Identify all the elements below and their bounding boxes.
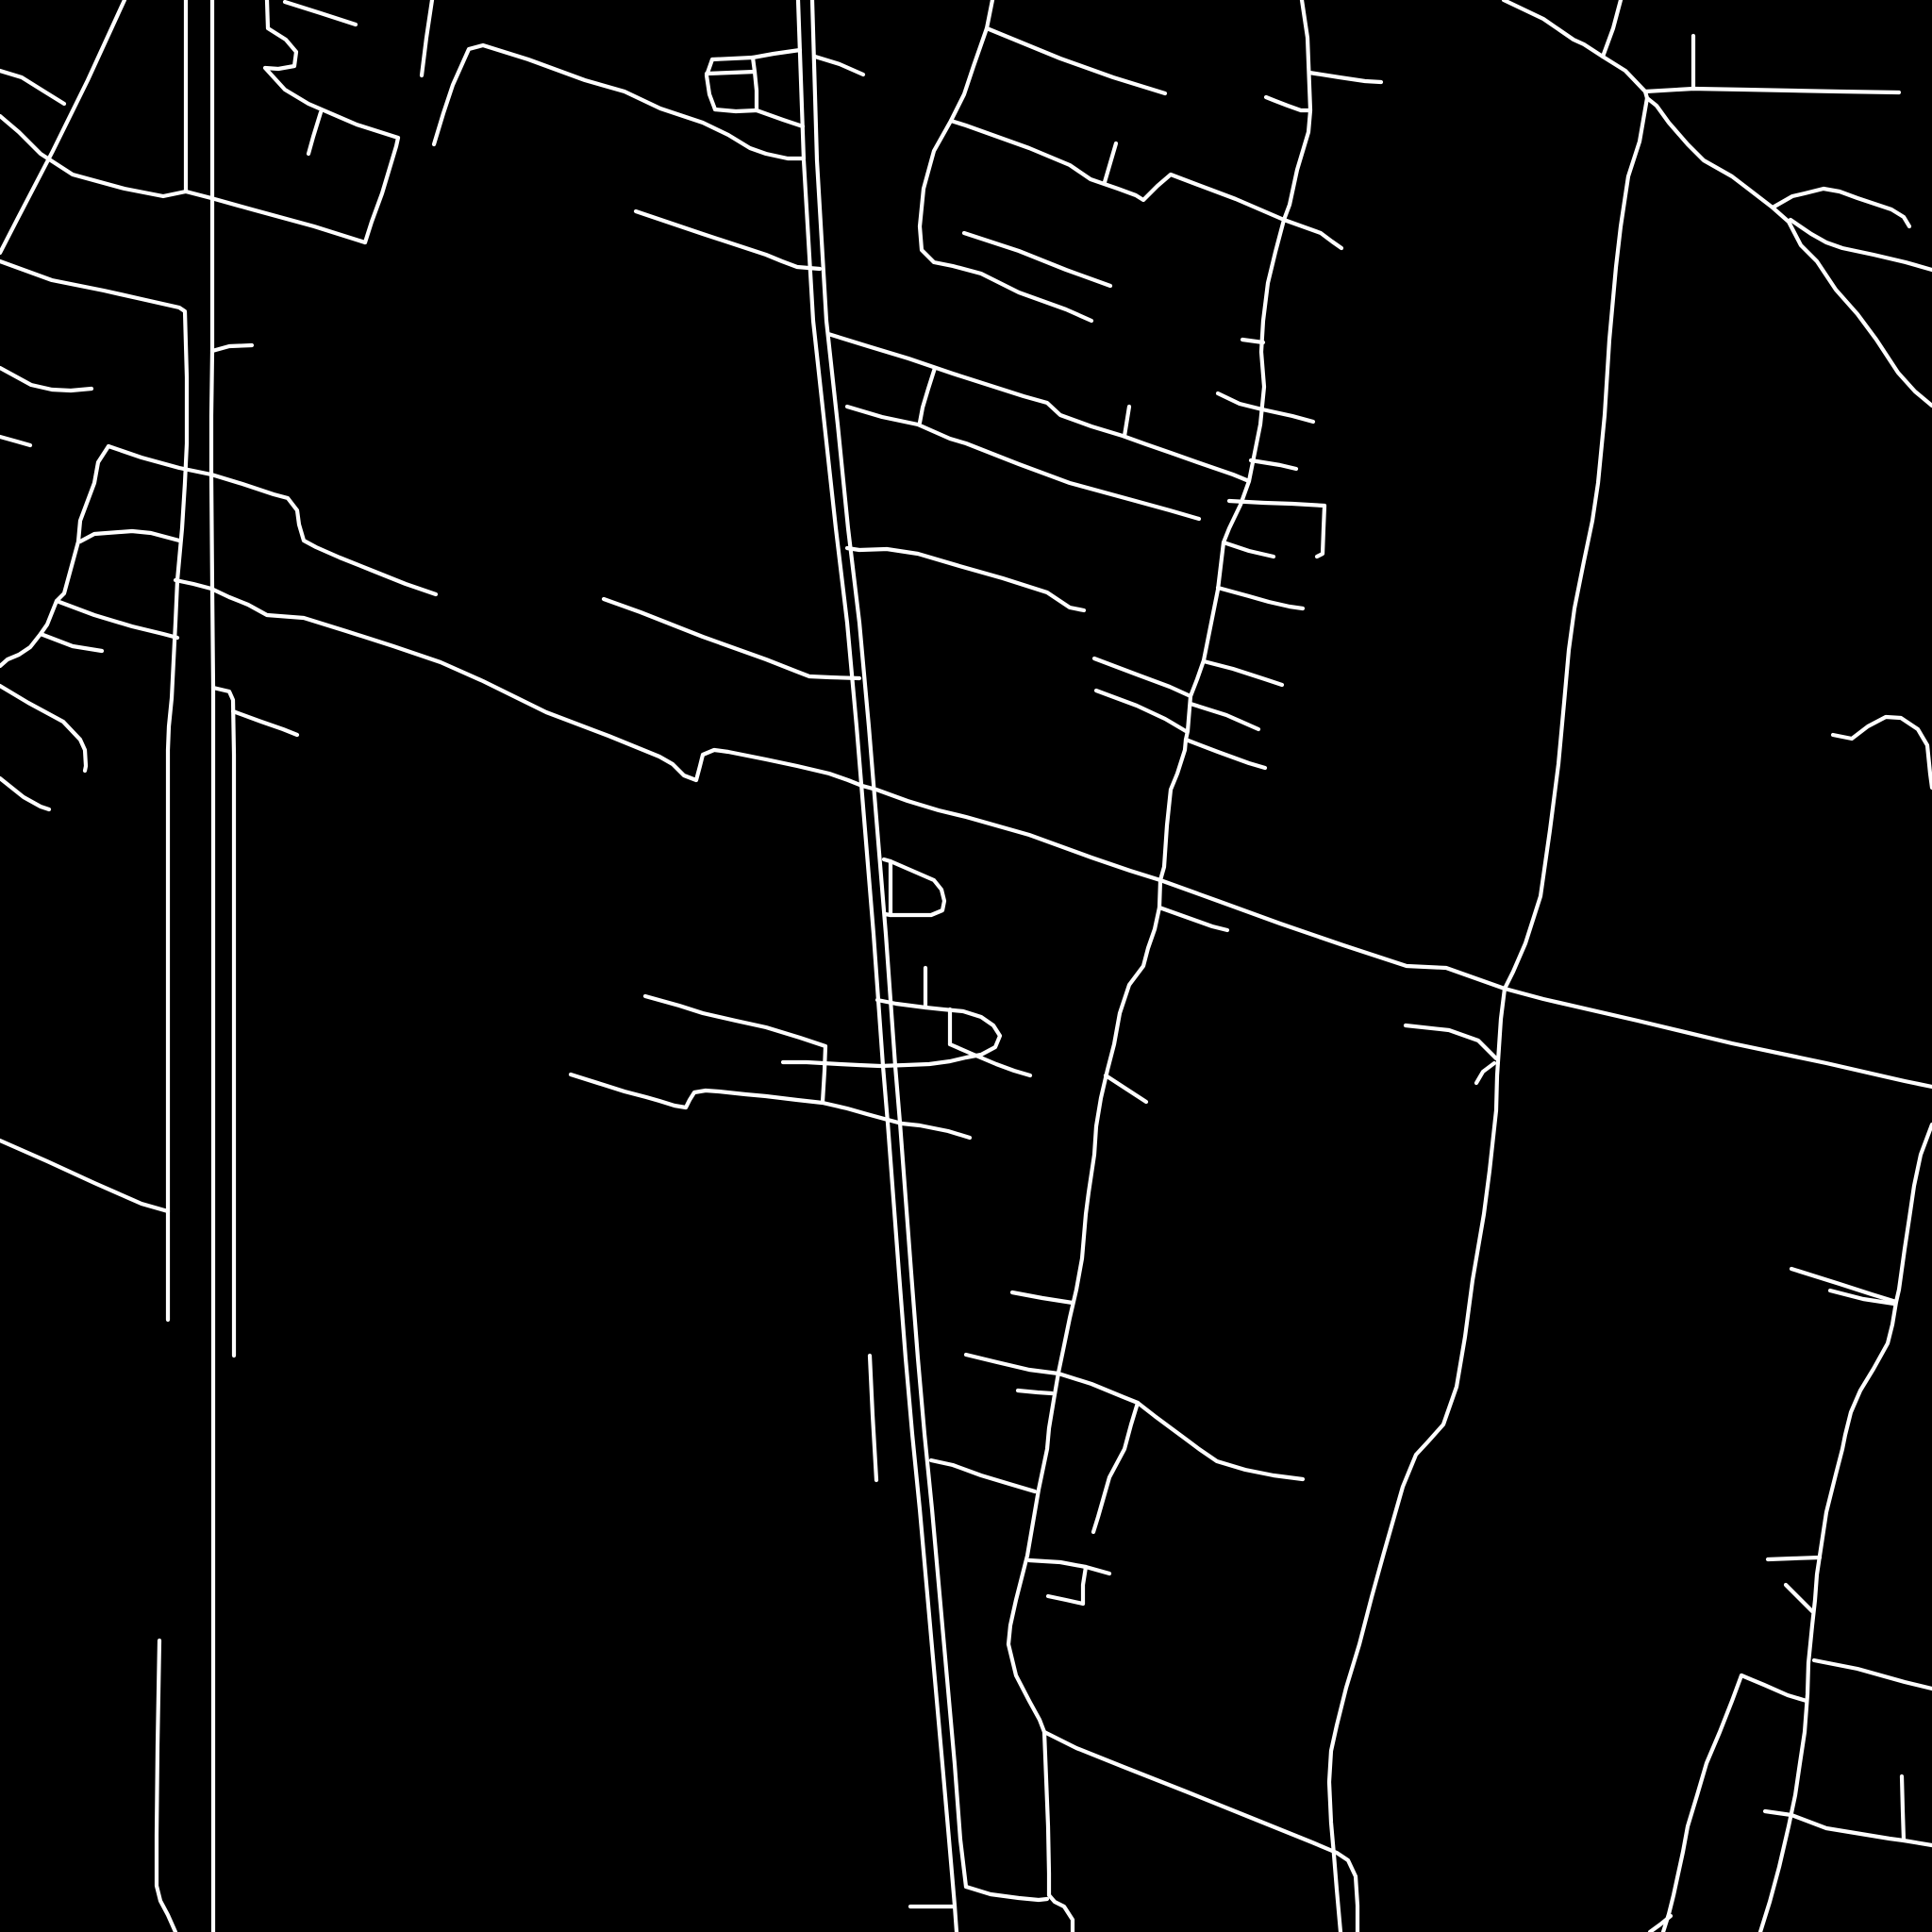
road-se-left-stub	[1768, 1557, 1820, 1559]
road-main-vertical-road	[211, 0, 213, 1932]
road-mask-map	[0, 0, 1932, 1932]
road-quad-top	[712, 58, 753, 59]
road-network-svg	[0, 0, 1932, 1932]
road-se-vertical-stub	[1902, 1776, 1904, 1840]
road-quad-bottom	[715, 109, 757, 111]
map-background	[0, 0, 1932, 1932]
road-east-stub-left	[1242, 340, 1263, 342]
road-quad-inner	[707, 72, 755, 74]
